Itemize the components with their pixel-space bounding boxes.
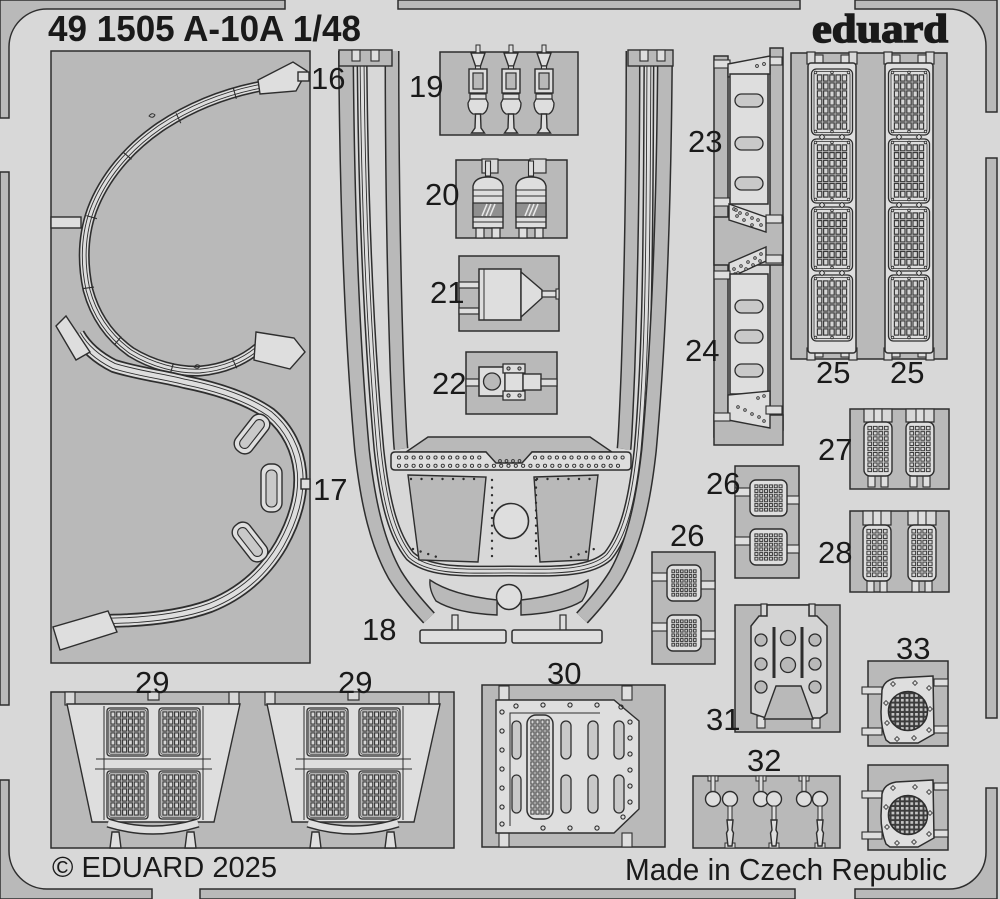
svg-text:30: 30 xyxy=(547,656,581,691)
svg-text:26: 26 xyxy=(706,466,740,501)
svg-text:25: 25 xyxy=(816,355,850,390)
svg-text:23: 23 xyxy=(688,124,722,159)
svg-text:21: 21 xyxy=(430,275,464,310)
svg-text:18: 18 xyxy=(362,612,396,647)
svg-text:29: 29 xyxy=(338,665,372,700)
svg-text:49 1505 A-10A 1/48: 49 1505 A-10A 1/48 xyxy=(48,8,361,49)
svg-text:28: 28 xyxy=(818,535,852,570)
svg-text:22: 22 xyxy=(432,366,466,401)
svg-text:24: 24 xyxy=(685,333,719,368)
svg-text:25: 25 xyxy=(890,355,924,390)
svg-text:29: 29 xyxy=(135,665,169,700)
svg-text:31: 31 xyxy=(706,702,740,737)
svg-text:© EDUARD 2025: © EDUARD 2025 xyxy=(52,852,277,884)
svg-text:16: 16 xyxy=(311,61,345,96)
svg-text:27: 27 xyxy=(818,432,852,467)
svg-text:20: 20 xyxy=(425,177,459,212)
svg-text:Made in Czech Republic: Made in Czech Republic xyxy=(625,852,947,887)
svg-text:32: 32 xyxy=(747,743,781,778)
svg-text:17: 17 xyxy=(313,472,347,507)
svg-text:26: 26 xyxy=(670,518,704,553)
svg-text:19: 19 xyxy=(409,69,443,104)
svg-text:33: 33 xyxy=(896,631,930,666)
svg-text:eduard: eduard xyxy=(812,6,948,51)
